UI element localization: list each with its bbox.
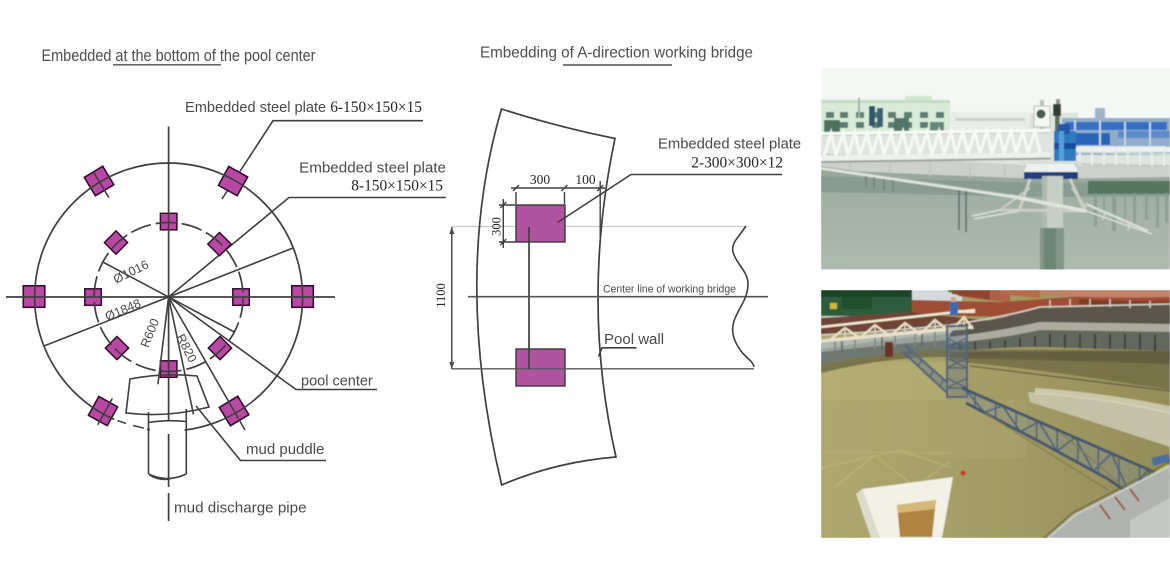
svg-text:mud puddle: mud puddle (246, 441, 324, 458)
svg-text:2-300×300×12: 2-300×300×12 (691, 155, 783, 172)
svg-text:R820: R820 (173, 332, 199, 365)
svg-text:Ø1848: Ø1848 (103, 296, 143, 324)
svg-text:100: 100 (575, 172, 596, 187)
svg-text:Embedded at the bottom of the: Embedded at the bottom of the pool cente… (42, 46, 316, 65)
svg-text:1100: 1100 (434, 283, 448, 308)
svg-text:R600: R600 (138, 316, 162, 349)
svg-text:Pool wall: Pool wall (604, 331, 664, 348)
svg-text:pool center: pool center (301, 374, 373, 390)
svg-text:300: 300 (490, 217, 504, 236)
svg-text:Center line of working bridge: Center line of working bridge (603, 284, 736, 296)
svg-text:Embedded steel plate: Embedded steel plate (658, 137, 801, 153)
svg-text:Embedded steel plate 6-150×150: Embedded steel plate 6-150×150×15 (185, 99, 422, 116)
svg-text:mud discharge pipe: mud discharge pipe (174, 500, 307, 517)
svg-text:8-150×150×15: 8-150×150×15 (351, 178, 443, 195)
svg-text:Embedded steel plate: Embedded steel plate (299, 160, 446, 177)
svg-text:Ø1016: Ø1016 (111, 257, 151, 286)
svg-text:Embedding of A-direction worki: Embedding of A-direction working bridge (480, 45, 753, 62)
svg-text:300: 300 (530, 172, 551, 187)
